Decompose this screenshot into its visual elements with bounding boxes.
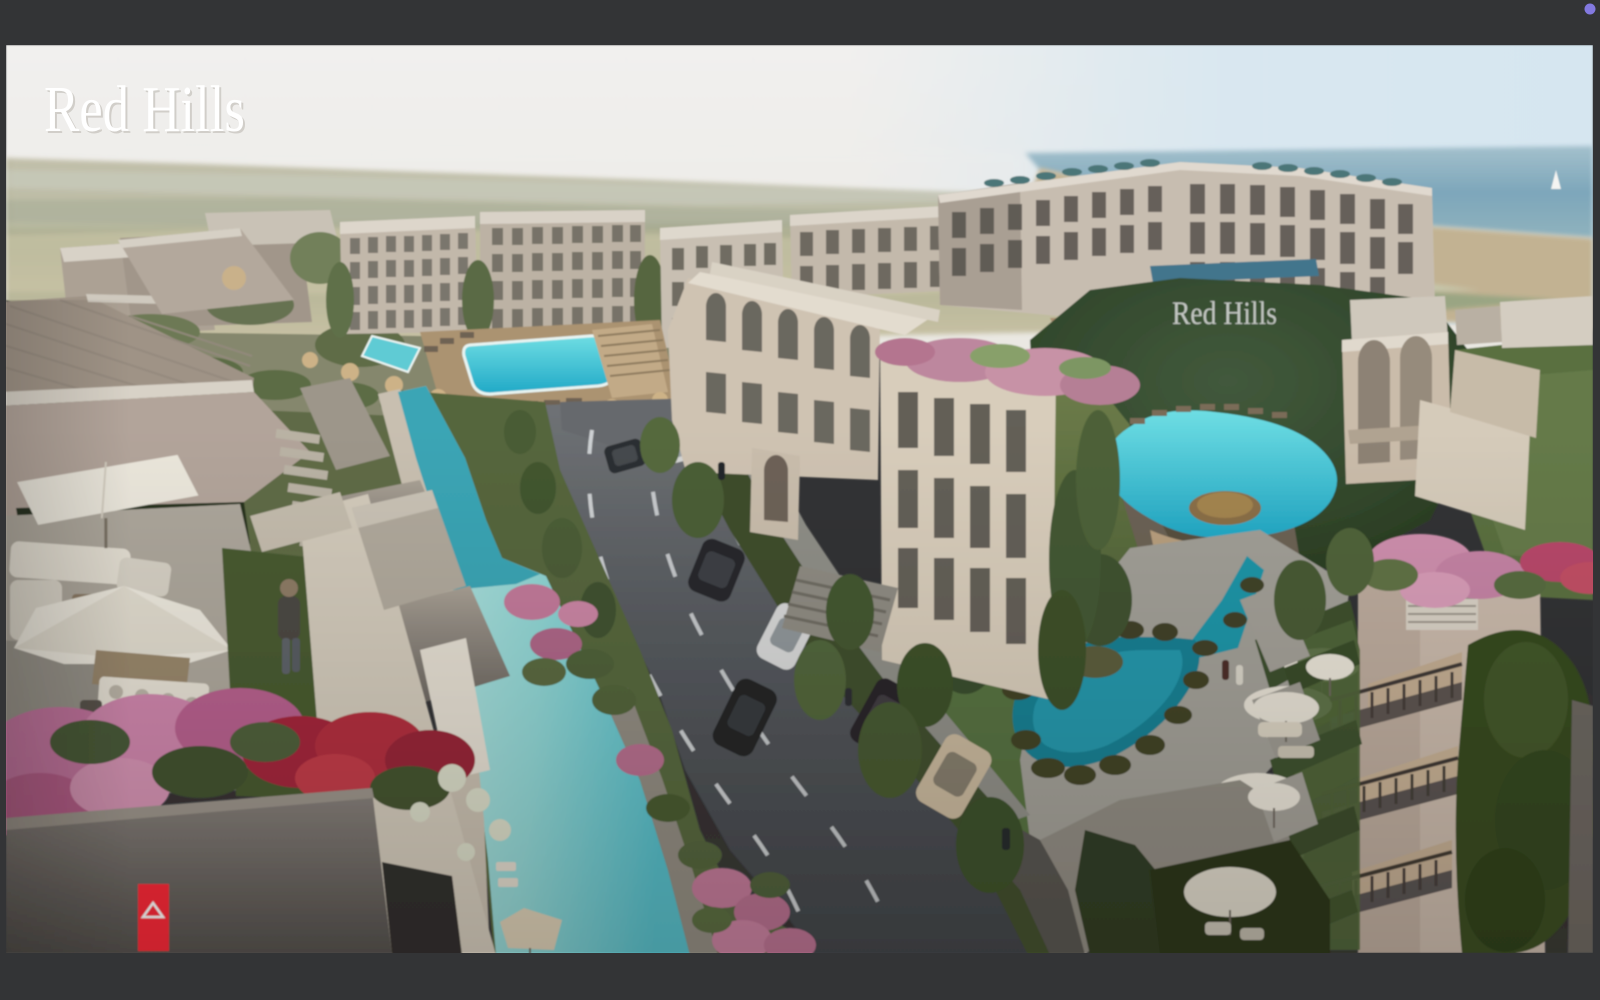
svg-text:Red Hills: Red Hills <box>44 73 245 146</box>
